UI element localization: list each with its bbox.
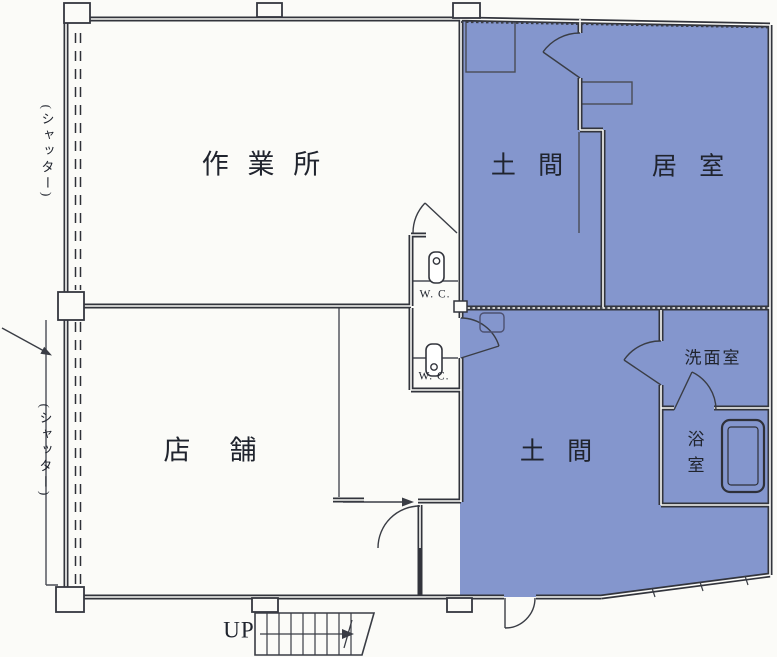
room-label-washroom: 洗面室 bbox=[685, 350, 742, 367]
room-label-workshop: 作 業 所 bbox=[202, 152, 327, 179]
pillar-bottom-left bbox=[56, 587, 84, 612]
pillar-bottom-tab bbox=[447, 598, 472, 612]
room-label-shop: 店 舗 bbox=[164, 438, 263, 465]
pillar-top-mid bbox=[257, 3, 282, 17]
room-label-doma-lower: 土 間 bbox=[520, 440, 600, 465]
toilet-icon-upper bbox=[429, 252, 444, 283]
shutter-line-upper bbox=[76, 33, 81, 290]
shutter-pointer-arrow bbox=[2, 328, 52, 356]
pillar-top-left bbox=[64, 3, 90, 23]
door-wc-upper bbox=[413, 203, 457, 233]
room-label-bathroom: 浴室 bbox=[686, 430, 703, 482]
door-entrance bbox=[505, 598, 535, 628]
room-label-wc-upper: W. C. bbox=[419, 289, 450, 301]
room-label-living: 居 室 bbox=[652, 155, 732, 180]
shutter-label-upper: (シャッター) bbox=[41, 105, 54, 200]
wall-junction-box bbox=[454, 301, 467, 312]
stairs-up-label: UP bbox=[223, 619, 254, 642]
room-label-doma-upper: 土 間 bbox=[491, 154, 571, 179]
floor-plan: 作 業 所 店 舗 土 間 居 室 土 間 洗面室 浴室 W. C. W. C.… bbox=[0, 0, 777, 657]
stair-landing-tab bbox=[252, 598, 278, 612]
shutter-label-lower: (シャッター) bbox=[39, 404, 52, 499]
shutter-line-lower bbox=[76, 322, 81, 587]
pillar-top-center bbox=[453, 3, 480, 18]
floor-plan-drawing bbox=[0, 0, 777, 657]
room-label-wc-lower: W. C. bbox=[418, 371, 449, 383]
stairs bbox=[255, 613, 374, 655]
door-shop-corridor bbox=[378, 506, 420, 548]
pillar-left-mid bbox=[58, 292, 84, 320]
